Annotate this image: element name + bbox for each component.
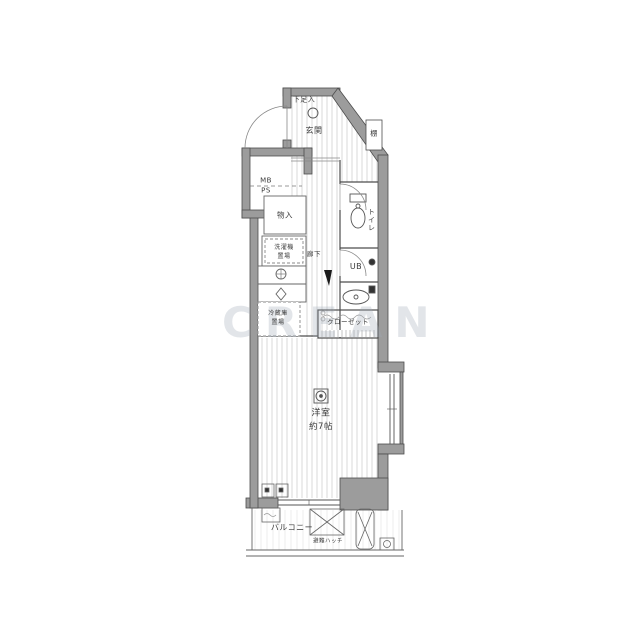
- label-storage: 物入: [277, 211, 293, 219]
- label-bath: UB: [350, 263, 362, 271]
- label-room-size: 約7帖: [309, 423, 333, 432]
- label-ps: PS: [261, 188, 271, 195]
- bath-faucet-icon: [369, 286, 375, 293]
- label-closet: クローゼット: [327, 319, 369, 326]
- label-balcony: バルコニー: [271, 524, 313, 532]
- mb-wall: [242, 148, 250, 218]
- label-washer-2: 置場: [277, 254, 290, 260]
- label-fridge-1: 冷蔵庫: [268, 311, 288, 317]
- label-entrance: 玄関: [306, 127, 323, 135]
- wall-segment: [378, 444, 404, 454]
- label-shelf: 棚: [370, 131, 378, 138]
- balcony-window: [278, 500, 340, 505]
- label-room: 洋室: [311, 410, 330, 419]
- label-shoe-box: 下足入: [293, 97, 316, 104]
- bath-sink-icon: [343, 290, 369, 304]
- floorplan-image: CREAN 下足入 玄関 棚 MB PS 物入 トイレ 廊下 洗濯機 置場 UB…: [0, 0, 640, 640]
- washer-box: [262, 236, 306, 266]
- label-washer-1: 洗濯機: [274, 245, 294, 251]
- wall-segment: [340, 478, 388, 510]
- label-hatch: 避難ハッチ: [313, 539, 343, 545]
- bay-window: [387, 374, 397, 444]
- label-hall: 廊下: [307, 251, 321, 258]
- wall-segment: [378, 155, 388, 368]
- mb-wall: [242, 148, 312, 156]
- wall-segment: [250, 214, 258, 508]
- label-toilet: トイレ: [368, 208, 375, 232]
- label-fridge-2: 置場: [271, 320, 284, 326]
- entrance-door-arc: [245, 106, 287, 148]
- label-mb: MB: [260, 178, 272, 185]
- bath-drain-icon: [369, 259, 375, 265]
- wall-segment: [378, 362, 404, 372]
- wall-segment: [283, 88, 291, 108]
- wall-segment: [400, 372, 403, 444]
